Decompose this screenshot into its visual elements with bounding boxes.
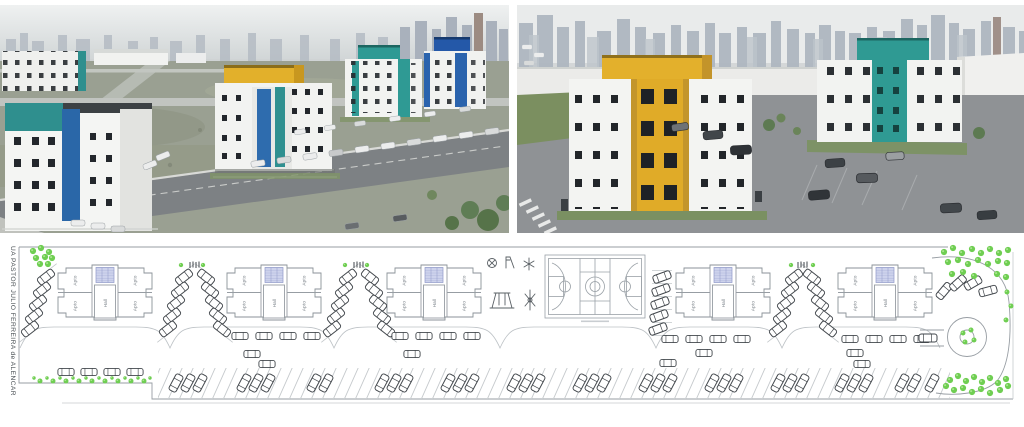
court-caption-placeholder bbox=[581, 321, 609, 323]
sports-court bbox=[545, 255, 645, 322]
render-courtyard-view bbox=[517, 5, 1024, 233]
render-aerial-estate bbox=[0, 5, 509, 233]
architectural-presentation-board: Apto Apto Apto Apto Hall bbox=[0, 0, 1024, 427]
site-plan-drawing: Apto Apto Apto Apto Hall bbox=[0, 243, 1024, 427]
building-foreground-left bbox=[2, 103, 158, 231]
site-plan-panel: Apto Apto Apto Apto Hall bbox=[0, 243, 1024, 427]
building-yellow bbox=[557, 55, 767, 220]
street-label: UA PASTOR JULIO FERREIRA de ALENCAR bbox=[9, 246, 16, 396]
render-panels-row bbox=[0, 5, 1024, 233]
playground-equipment bbox=[488, 257, 536, 310]
street-parking-row bbox=[158, 368, 950, 399]
